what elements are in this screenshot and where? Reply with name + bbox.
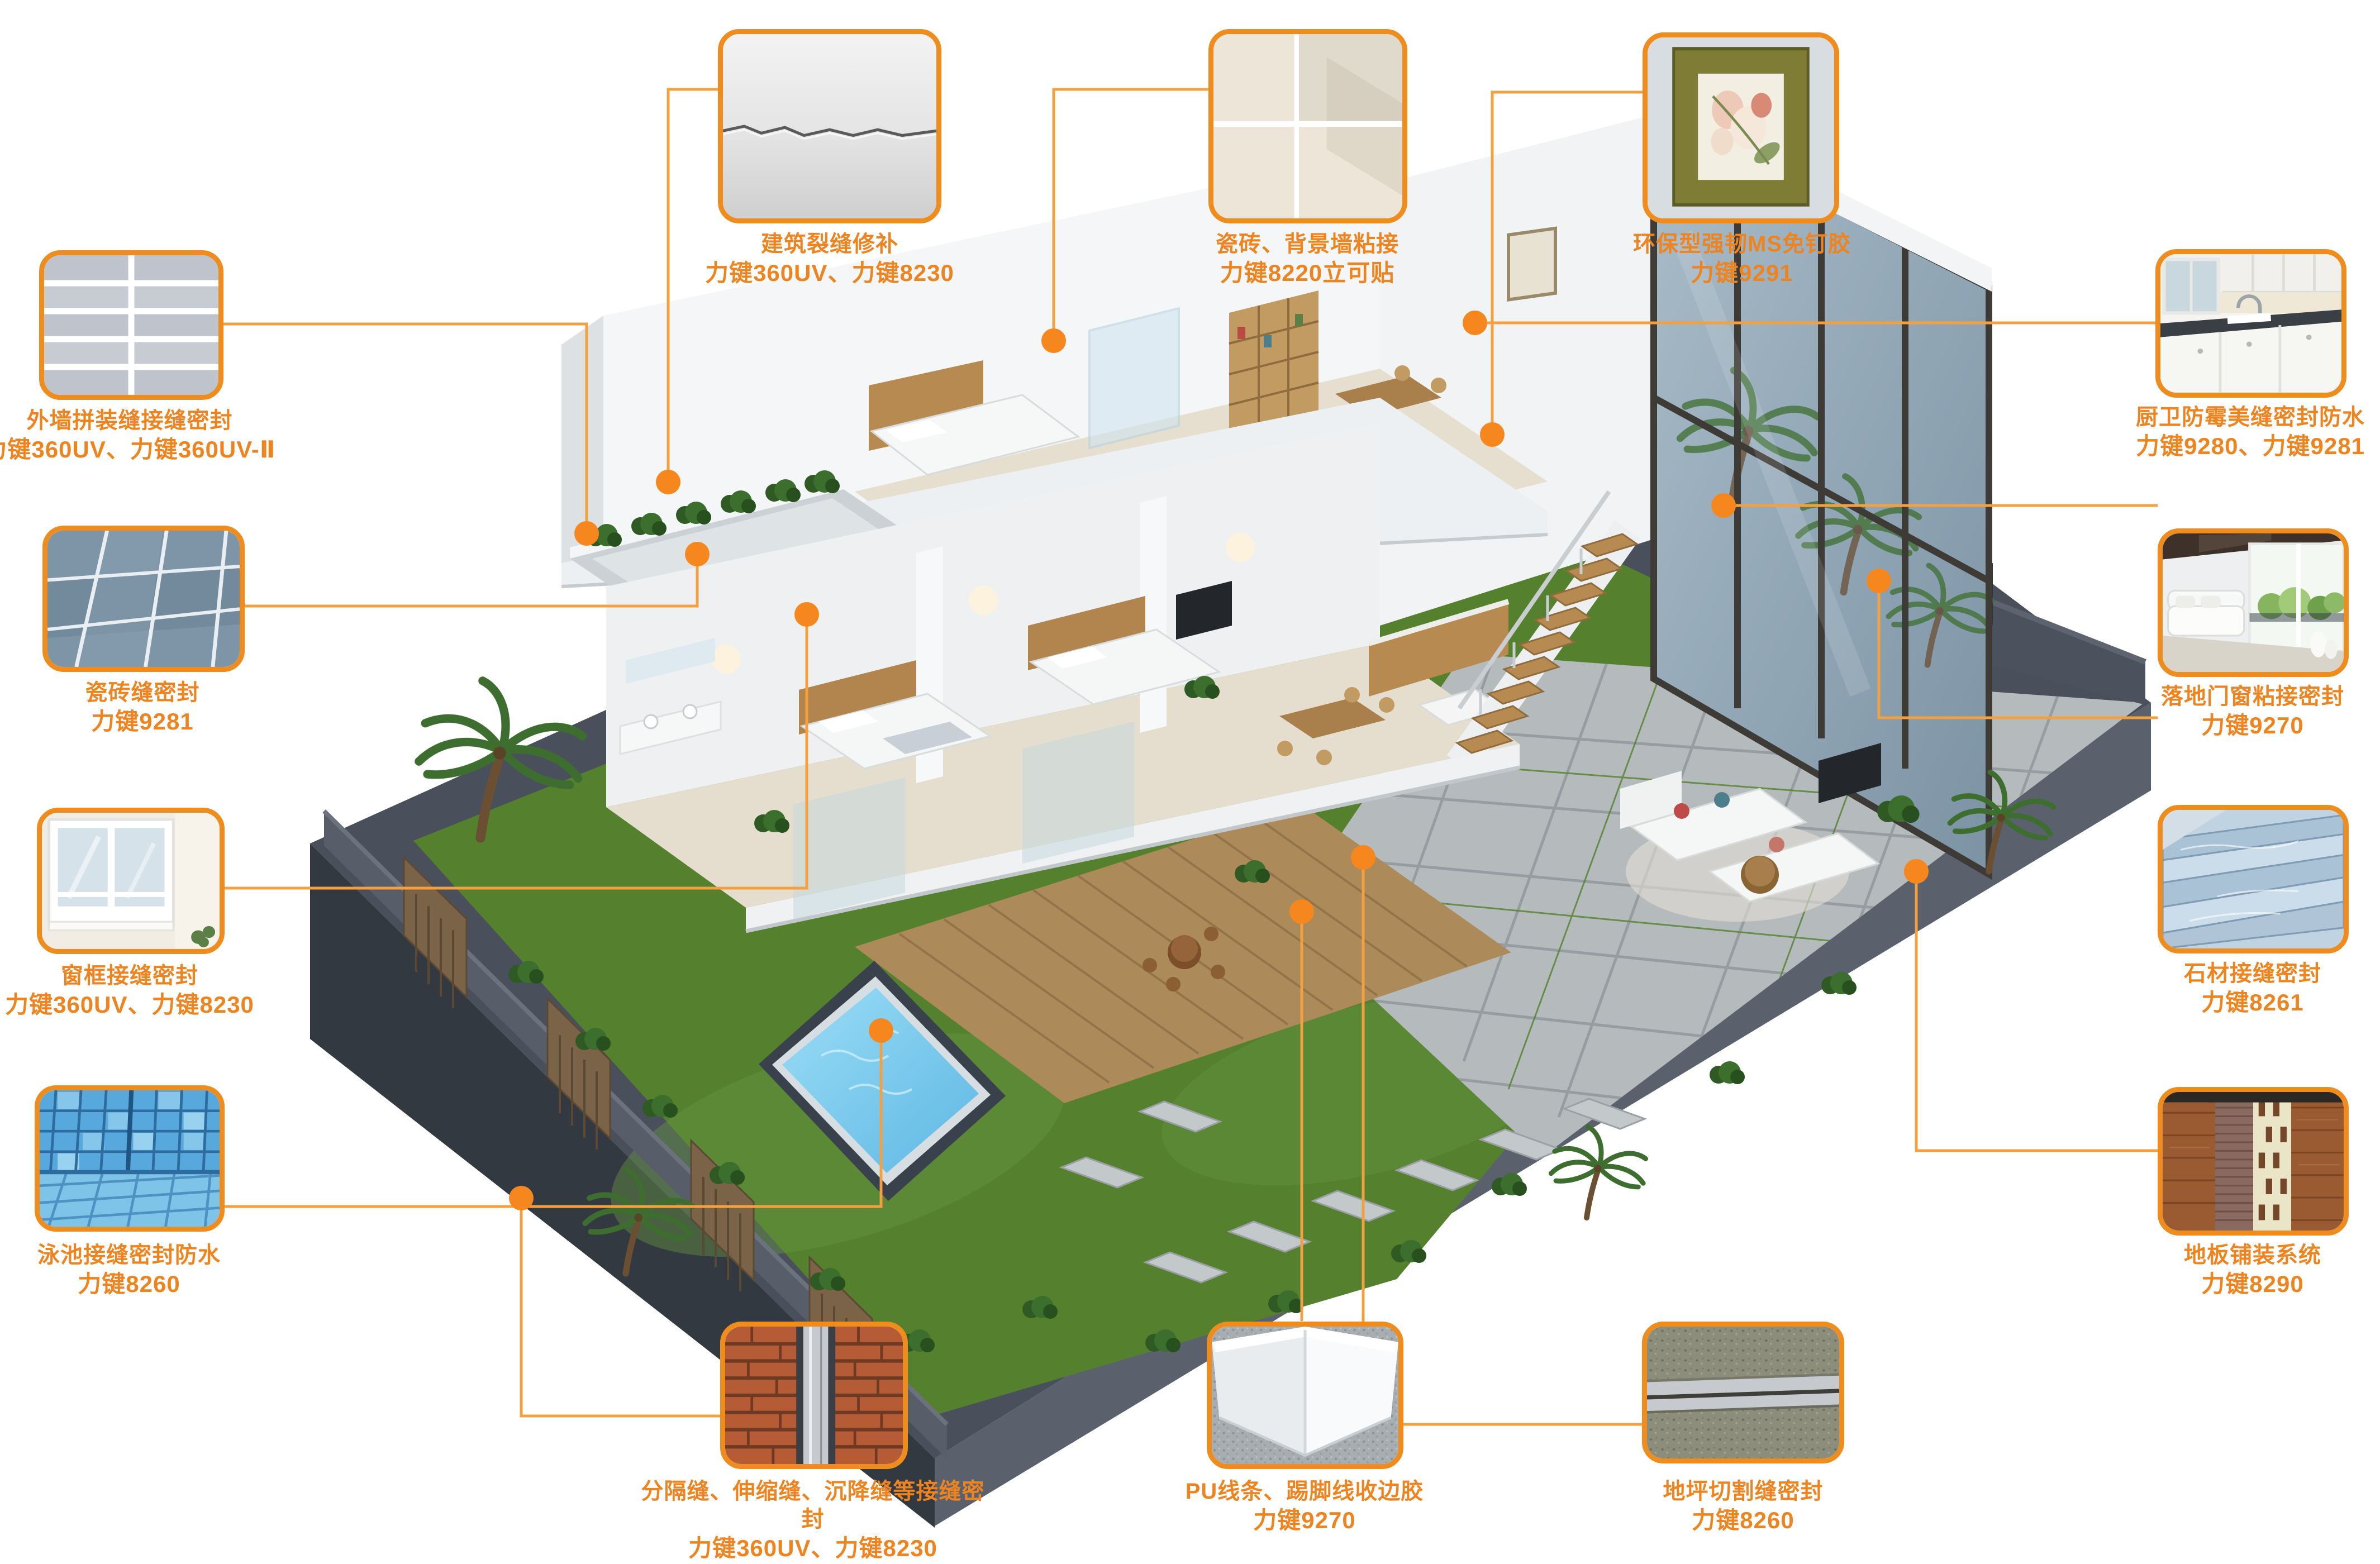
label-floor-cut-joint: 地坪切割缝密封 力键8260 xyxy=(1570,1477,1916,1536)
callout-product: 力键360UV、力键8230 xyxy=(0,990,303,1021)
callout-product: 力键8220立可贴 xyxy=(1134,258,1481,289)
callout-title: 落地门窗粘接密封 xyxy=(2079,683,2380,711)
callout-title: 分隔缝、伸缩缝、沉降缝等接缝密封 xyxy=(640,1477,986,1533)
wood-floor-thumbnail xyxy=(2163,1092,2344,1231)
callout-pool-joint xyxy=(35,1085,225,1232)
concrete-joint-thumbnail xyxy=(1647,1327,1839,1458)
callout-product: 力键9291 xyxy=(1569,258,1915,289)
callout-title: 外墙拼装缝接缝密封 xyxy=(0,407,303,435)
callout-product: 力键9270 xyxy=(1131,1505,1478,1536)
label-kitchen-bath: 厨卫防霉美缝密封防水 力键9280、力键9281 xyxy=(2077,403,2380,462)
callout-exterior-wall-seam xyxy=(39,250,223,400)
callout-title: 泳池接缝密封防水 xyxy=(0,1241,302,1269)
callout-glass-door-bond xyxy=(2158,528,2349,677)
callout-product: 力键8260 xyxy=(0,1269,302,1300)
callout-product: 力键8261 xyxy=(2079,988,2380,1018)
kitchen-thumbnail xyxy=(2160,254,2341,393)
callout-kitchen-bath xyxy=(2155,249,2346,398)
stone-steps-thumbnail xyxy=(2163,810,2344,948)
tile-bonding-thumbnail xyxy=(1213,34,1402,218)
pool-mosaic-thumbnail xyxy=(40,1090,220,1227)
crack-repair-thumbnail xyxy=(723,34,936,218)
callout-product: 力键9280、力键9281 xyxy=(2077,431,2380,462)
label-floor-paving: 地板铺装系统 力键8290 xyxy=(2079,1241,2380,1300)
label-pool-joint: 泳池接缝密封防水 力键8260 xyxy=(0,1241,302,1300)
blue-tiles-thumbnail xyxy=(47,531,240,667)
living-room-thumbnail xyxy=(2163,533,2344,672)
label-exterior-wall-seam: 外墙拼装缝接缝密封 力键360UV、力键360UV-Ⅱ xyxy=(0,407,303,465)
callout-title: 瓷砖缝密封 xyxy=(0,679,316,707)
application-diagram-page: { "colors": { "accent_border": "#EE8C1E"… xyxy=(0,0,2380,1528)
callout-floor-cut-joint xyxy=(1642,1322,1844,1463)
callout-pu-trim xyxy=(1207,1322,1403,1469)
label-tile-wall-bonding: 瓷砖、背景墙粘接 力键8220立可贴 xyxy=(1134,230,1481,289)
callout-ms-nail-free xyxy=(1643,32,1839,223)
label-window-frame-seam: 窗框接缝密封 力键360UV、力键8230 xyxy=(0,962,303,1021)
callout-title: 地板铺装系统 xyxy=(2079,1241,2380,1269)
callout-window-frame xyxy=(37,808,225,954)
label-glass-door-bond: 落地门窗粘接密封 力键9270 xyxy=(2079,683,2380,741)
villa-3d-model xyxy=(0,0,2380,1528)
callout-title: 厨卫防霉美缝密封防水 xyxy=(2077,403,2380,431)
callout-crack-repair xyxy=(718,29,941,223)
callout-title: 窗框接缝密封 xyxy=(0,962,303,990)
label-expansion-joint: 分隔缝、伸缩缝、沉降缝等接缝密封 力键360UV、力键8230 xyxy=(640,1477,986,1564)
callout-product: 力键360UV、力键8230 xyxy=(656,258,1003,289)
callout-tile-joint xyxy=(42,526,245,672)
callout-floor-paving xyxy=(2158,1087,2349,1236)
callout-product: 力键8260 xyxy=(1570,1505,1916,1536)
callout-product: 力键9270 xyxy=(2079,711,2380,741)
label-pu-trim: PU线条、踢脚线收边胶 力键9270 xyxy=(1131,1477,1478,1536)
callout-product: 力键360UV、力键8230 xyxy=(640,1533,986,1564)
callout-product: 力键9281 xyxy=(0,707,316,737)
callout-stone-joint xyxy=(2158,805,2349,953)
callout-tile-wall-bonding xyxy=(1208,29,1407,223)
callout-title: 地坪切割缝密封 xyxy=(1570,1477,1916,1505)
label-tile-joint: 瓷砖缝密封 力键9281 xyxy=(0,679,316,737)
callout-expansion-joint xyxy=(720,1322,908,1469)
label-stone-joint: 石材接缝密封 力键8261 xyxy=(2079,960,2380,1018)
framed-picture-thumbnail xyxy=(1648,37,1834,218)
window-thumbnail xyxy=(42,813,220,949)
callout-product: 力键8290 xyxy=(2079,1269,2380,1300)
pu-corner-thumbnail xyxy=(1212,1327,1398,1464)
brick-joint-thumbnail xyxy=(725,1327,903,1464)
callout-title: 石材接缝密封 xyxy=(2079,960,2380,988)
callout-title: 建筑裂缝修补 xyxy=(656,230,1003,258)
wall-panels-thumbnail xyxy=(44,255,218,395)
label-ms-nail-free: 环保型强韧MS免钉胶 力键9291 xyxy=(1569,230,1915,289)
callout-title: PU线条、踢脚线收边胶 xyxy=(1131,1477,1478,1505)
callout-product: 力键360UV、力键360UV-Ⅱ xyxy=(0,435,303,465)
callout-title: 瓷砖、背景墙粘接 xyxy=(1134,230,1481,258)
label-crack-repair: 建筑裂缝修补 力键360UV、力键8230 xyxy=(656,230,1003,289)
callout-title: 环保型强韧MS免钉胶 xyxy=(1569,230,1915,258)
